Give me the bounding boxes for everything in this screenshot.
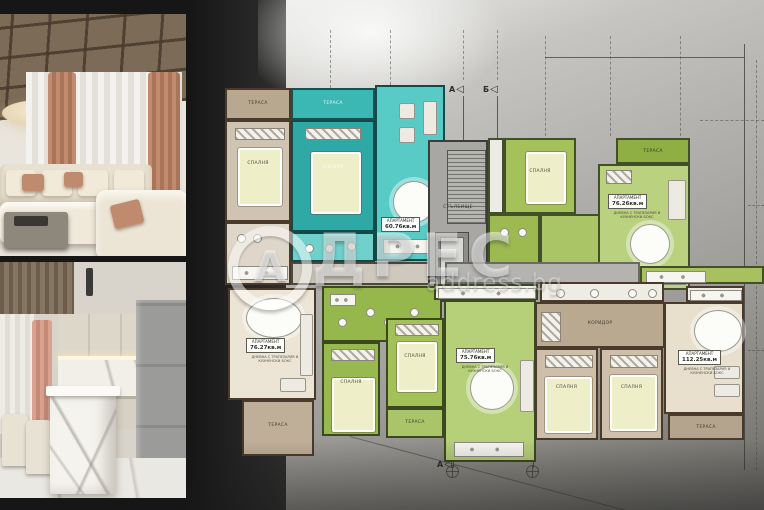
dot-symbol (628, 289, 637, 298)
bed-symbol (332, 378, 375, 432)
living-cream: АПАРТАМЕНТ76.27кв.мДНЕВНА С ТРАПЕЗАРИЯ И… (228, 288, 316, 400)
bedroom-teal: СПАЛНЯ (291, 120, 375, 232)
bath-green-a (488, 214, 540, 264)
hatch-symbol (541, 312, 561, 342)
apartment-label: АПАРТАМЕНТ75.76кв.м (456, 348, 495, 363)
section-marker: А◁ (449, 84, 464, 95)
bed-symbol (610, 375, 657, 431)
room-label: СТЪЛБИЩЕ (430, 205, 486, 210)
kitchen-right (686, 286, 744, 302)
terrace-top-teal: ТЕРАСА (291, 88, 375, 120)
living-right: АПАРТАМЕНТ112.25кв.мДНЕВНА С ТРАПЕЗАРИЯ … (664, 302, 744, 414)
dot-symbol (590, 289, 599, 298)
grid-line (390, 30, 391, 85)
living-green-d: АПАРТАМЕНТ75.76кв.мДНЕВНА С ТРАПЕЗАРИЯ И… (444, 300, 536, 462)
hatch-symbol (395, 324, 439, 336)
apartment-label: АПАРТАМЕНТ112.25кв.м (678, 350, 721, 365)
hatch-symbol (545, 355, 593, 368)
terrace-green-b: ТЕРАСА (616, 138, 690, 164)
hatch-symbol (331, 349, 375, 361)
dot-symbol (338, 318, 347, 327)
hatch-symbol (305, 128, 361, 140)
dot-symbol (237, 234, 246, 243)
room-label: СПАЛНЯ (293, 165, 373, 170)
bed-symbol (238, 148, 282, 206)
section-marker-label: Б (483, 85, 489, 94)
dot-symbol (253, 234, 262, 243)
apartment-label: АПАРТАМЕНТ60.76кв.м (381, 217, 420, 232)
room-description: ДНЕВНА С ТРАПЕЗАРИЯ И КУХНЕНСКИ БОКС (454, 365, 516, 374)
sofa-symbol (280, 378, 306, 392)
bedroom-taupe-left: СПАЛНЯ (225, 120, 291, 222)
room-label: СПАЛНЯ (602, 385, 661, 390)
bedroom-green-c1: СПАЛНЯ (322, 342, 380, 436)
terrace-right: ТЕРАСА (668, 414, 744, 440)
bedroom-green-a: СПАЛНЯ (504, 138, 576, 214)
kitchen-green-d (434, 284, 538, 300)
grid-line (463, 30, 464, 80)
sofa-symbol (423, 101, 437, 135)
grid-line (545, 36, 546, 136)
bedroom-right-1: СПАЛНЯ (535, 348, 598, 440)
sofa-symbol (399, 103, 415, 119)
room-label: СПАЛНЯ (388, 354, 442, 359)
hatch-symbol (235, 128, 285, 140)
grid-line (330, 30, 331, 88)
grid-line (680, 36, 681, 136)
pendant-light (86, 268, 93, 296)
rtable-symbol (630, 224, 670, 264)
dot-symbol (305, 244, 314, 253)
closet-green-a (488, 138, 504, 214)
apartment-label: АПАРТАМЕНТ76.27кв.м (246, 338, 285, 353)
marble-island (50, 390, 116, 494)
room-label: КОРИДОР (537, 321, 663, 326)
grid-line (756, 60, 757, 470)
terrace-green-c: ТЕРАСА (386, 408, 444, 438)
counter-symbol (330, 294, 356, 306)
dot-symbol (648, 289, 657, 298)
section-arrow-icon: ◁ (456, 84, 464, 95)
room-label: ТЕРАСА (618, 149, 688, 154)
room-description: ДНЕВНА С ТРАПЕЗАРИЯ И КУХНЕНСКИ БОКС (244, 355, 306, 364)
terrace-top-taupe: ТЕРАСА (225, 88, 291, 120)
dot-symbol (500, 228, 509, 237)
grid-line (545, 57, 744, 58)
living-room-photo (0, 14, 186, 256)
dot-symbol (325, 244, 334, 253)
room-label: ТЕРАСА (227, 101, 289, 106)
accent-pillow (64, 172, 83, 187)
utility-taupe-left (225, 222, 291, 285)
grid-line (497, 96, 498, 138)
grid-line (610, 36, 611, 136)
room-label: ТЕРАСА (293, 101, 373, 106)
room-label: СПАЛНЯ (227, 161, 289, 166)
room-label: ТЕРАСА (388, 420, 442, 425)
stairs-symbol (447, 150, 486, 224)
kitchen-photo (0, 262, 186, 498)
dot-symbol (347, 242, 356, 251)
grid-line (744, 44, 745, 470)
bed-symbol (397, 342, 437, 392)
section-marker: Б◁ (483, 84, 498, 95)
bed-symbol (526, 152, 566, 204)
counter-symbol (690, 290, 742, 301)
sofa-symbol (714, 384, 740, 397)
bedroom-right-2: СПАЛНЯ (600, 348, 663, 440)
room-description: ДНЕВНА С ТРАПЕЗАРИЯ И КУХНЕНСКИ БОКС (676, 367, 738, 376)
sofa-symbol (300, 314, 313, 376)
pink-curtain (32, 320, 52, 434)
room-label: ТЕРАСА (244, 423, 312, 428)
room-description: ДНЕВНА С ТРАПЕЗАРИЯ И КУХНЕНСКИ БОКС (606, 211, 668, 220)
sofa-symbol (668, 180, 686, 220)
room-label: СПАЛНЯ (537, 385, 596, 390)
dot-symbol (410, 308, 419, 317)
dot-symbol (518, 228, 527, 237)
hatch-symbol (610, 355, 658, 368)
bath-teal (291, 232, 375, 262)
bed-symbol (311, 152, 361, 214)
coffee-table-items (14, 216, 48, 226)
sofa-symbol (520, 360, 534, 412)
dot-symbol (366, 308, 375, 317)
wood-slat-ceiling (0, 262, 74, 314)
grid-line (748, 350, 764, 351)
dining-chair (2, 414, 28, 466)
apartment-label: АПАРТАМЕНТ76.26кв.м (608, 194, 647, 209)
counter-symbol (232, 266, 288, 280)
bedroom-green-c2: СПАЛНЯ (386, 318, 444, 408)
entry-teal (291, 262, 445, 285)
grid-line (463, 96, 464, 140)
corridor-building (445, 262, 640, 284)
grid-line (700, 120, 764, 121)
section-arrow-icon: ◁ (490, 84, 498, 95)
counter-symbol (438, 288, 536, 299)
baths-right (540, 282, 664, 302)
room-label: СПАЛНЯ (506, 169, 574, 174)
otable-symbol (694, 310, 742, 352)
section-marker-label: А (449, 85, 455, 94)
grid-line (497, 30, 498, 80)
hall-right: КОРИДОР (535, 302, 665, 348)
sofa-chaise (96, 190, 186, 256)
dining-chair (26, 420, 52, 474)
grid-line (748, 205, 764, 206)
listing-composite: ТЕРАСАТЕРАСАСПАЛНЯСПАЛНЯАПАРТАМЕНТ60.76к… (0, 0, 764, 510)
hatch-symbol (606, 170, 632, 184)
island-countertop (46, 386, 120, 396)
room-label: СПАЛНЯ (324, 380, 378, 385)
bottom-shadow-gradient (186, 440, 764, 510)
otable-symbol (246, 298, 302, 338)
dot-symbol (556, 289, 565, 298)
sofa-symbol (399, 127, 415, 143)
hall-green-a (540, 214, 602, 264)
room-label: ТЕРАСА (670, 425, 742, 430)
accent-pillow (22, 174, 44, 191)
